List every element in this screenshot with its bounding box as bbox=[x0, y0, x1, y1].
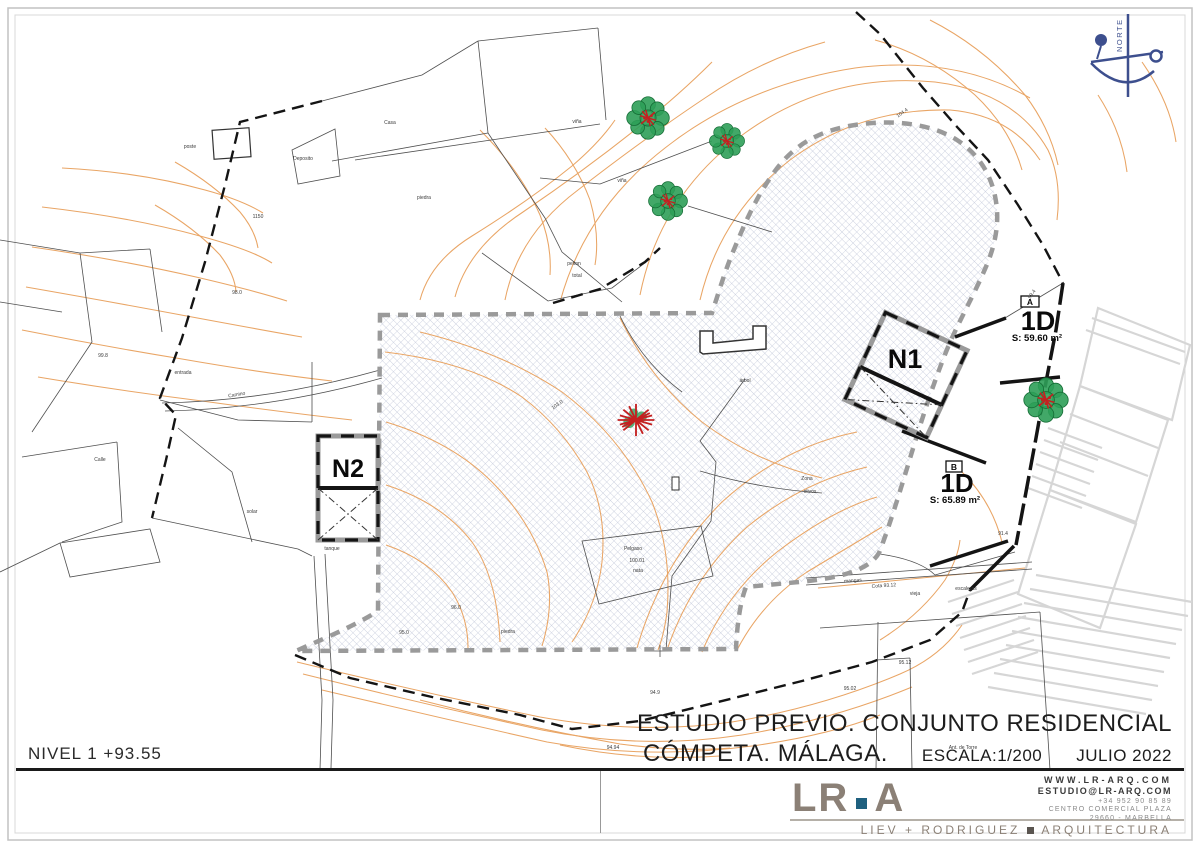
unit-label-b: B 1D S: 65.89 m² bbox=[930, 461, 980, 506]
title-block: ESTUDIO PREVIO. CONJUNTO RESIDENCIAL CÓM… bbox=[637, 710, 1172, 768]
date-label: JULIO 2022 bbox=[1076, 746, 1172, 766]
map-label: Pelgaso bbox=[624, 546, 642, 552]
map-label: Calle bbox=[94, 457, 106, 463]
tree-icon bbox=[709, 123, 744, 158]
map-label: Deposito bbox=[293, 156, 313, 162]
scale-label: ESCALA:1/200 bbox=[922, 746, 1042, 766]
map-label: viña bbox=[617, 178, 626, 184]
map-label: 95.0 bbox=[399, 630, 409, 636]
logo-lr: LR bbox=[792, 776, 849, 821]
titleblock-vertical-divider bbox=[600, 771, 601, 833]
map-label: nata bbox=[633, 568, 643, 574]
map-label: 96.0 bbox=[451, 605, 461, 611]
unit-b-area: S: 65.89 m² bbox=[930, 495, 980, 506]
tagline-square-icon bbox=[1027, 827, 1034, 834]
plan-sheet: N1 N2 A 1D S: 59.60 m² B 1D S: 65.89 m² … bbox=[0, 0, 1200, 848]
project-title-line2: CÓMPETA. MÁLAGA. bbox=[643, 740, 888, 768]
map-label: piedra bbox=[417, 195, 431, 201]
map-label: 1150 bbox=[253, 214, 264, 220]
map-label: 104.4 bbox=[896, 107, 910, 119]
map-label: 99.8 bbox=[98, 353, 108, 359]
map-label: entrada bbox=[175, 370, 192, 376]
tagline-names: LIEV + RODRIGUEZ bbox=[861, 823, 1021, 837]
unit-b-name: 1D bbox=[940, 468, 973, 498]
project-title-line1: ESTUDIO PREVIO. CONJUNTO RESIDENCIAL bbox=[637, 710, 1172, 738]
map-label: piedra bbox=[501, 629, 515, 635]
map-label: 94.94 bbox=[607, 745, 620, 751]
firm-website: WWW.LR-ARQ.COM bbox=[1038, 775, 1172, 786]
firm-logo: LR A bbox=[792, 776, 905, 821]
block-n1-label: N1 bbox=[888, 344, 923, 374]
map-label: solar bbox=[247, 509, 258, 515]
tree-icon bbox=[1024, 378, 1068, 422]
neighbor-structures-gray bbox=[948, 308, 1192, 714]
contact-block: WWW.LR-ARQ.COM ESTUDIO@LR-ARQ.COM +34 95… bbox=[1038, 775, 1172, 824]
map-label: Casa bbox=[384, 120, 396, 126]
tagline-discipline: ARQUITECTURA bbox=[1041, 823, 1172, 837]
map-label: 95.12 bbox=[899, 660, 912, 666]
firm-phone: +34 952 90 85 89 bbox=[1038, 798, 1172, 807]
map-label: 98.0 bbox=[232, 290, 242, 296]
map-label: Zona bbox=[801, 476, 813, 482]
block-n2-label: N2 bbox=[332, 455, 364, 483]
map-label: mangas bbox=[844, 577, 863, 584]
map-label: árbol bbox=[739, 378, 750, 384]
level-label: NIVEL 1 +93.55 bbox=[28, 744, 162, 764]
map-label: olivos bbox=[804, 489, 817, 495]
map-label: Cota 93.12 bbox=[872, 582, 897, 590]
unit-a-name: 1D bbox=[1021, 306, 1056, 336]
map-label: poste bbox=[184, 144, 196, 150]
compass-norte-label: NORTE bbox=[1115, 18, 1124, 52]
unit-a-area: S: 59.60 m² bbox=[1012, 333, 1062, 344]
tree-icon bbox=[627, 97, 670, 140]
map-label: 94.9 bbox=[650, 690, 660, 696]
map-label: pelton bbox=[567, 261, 581, 267]
logo-a: A bbox=[874, 776, 905, 821]
map-label: 95.02 bbox=[844, 686, 857, 692]
block-n2: N2 bbox=[318, 436, 378, 540]
map-label: escaleras bbox=[955, 586, 977, 592]
firm-address-line1: CENTRO COMERCIAL PLAZA bbox=[1038, 806, 1172, 815]
map-label: 91.4 bbox=[998, 531, 1008, 537]
map-label: vieja bbox=[910, 591, 921, 597]
logo-dot-icon bbox=[856, 798, 867, 809]
map-label: 100.01 bbox=[629, 558, 645, 564]
unit-label-a: A 1D S: 59.60 m² bbox=[1012, 296, 1062, 344]
north-compass-icon: NORTE bbox=[1091, 14, 1163, 97]
map-label: viña bbox=[572, 119, 581, 125]
tree-icon bbox=[649, 182, 688, 221]
map-label: total bbox=[572, 273, 581, 279]
firm-email: ESTUDIO@LR-ARQ.COM bbox=[1038, 786, 1172, 797]
firm-tagline: LIEV + RODRIGUEZ ARQUITECTURA bbox=[861, 823, 1172, 837]
map-label: tanque bbox=[324, 546, 340, 552]
